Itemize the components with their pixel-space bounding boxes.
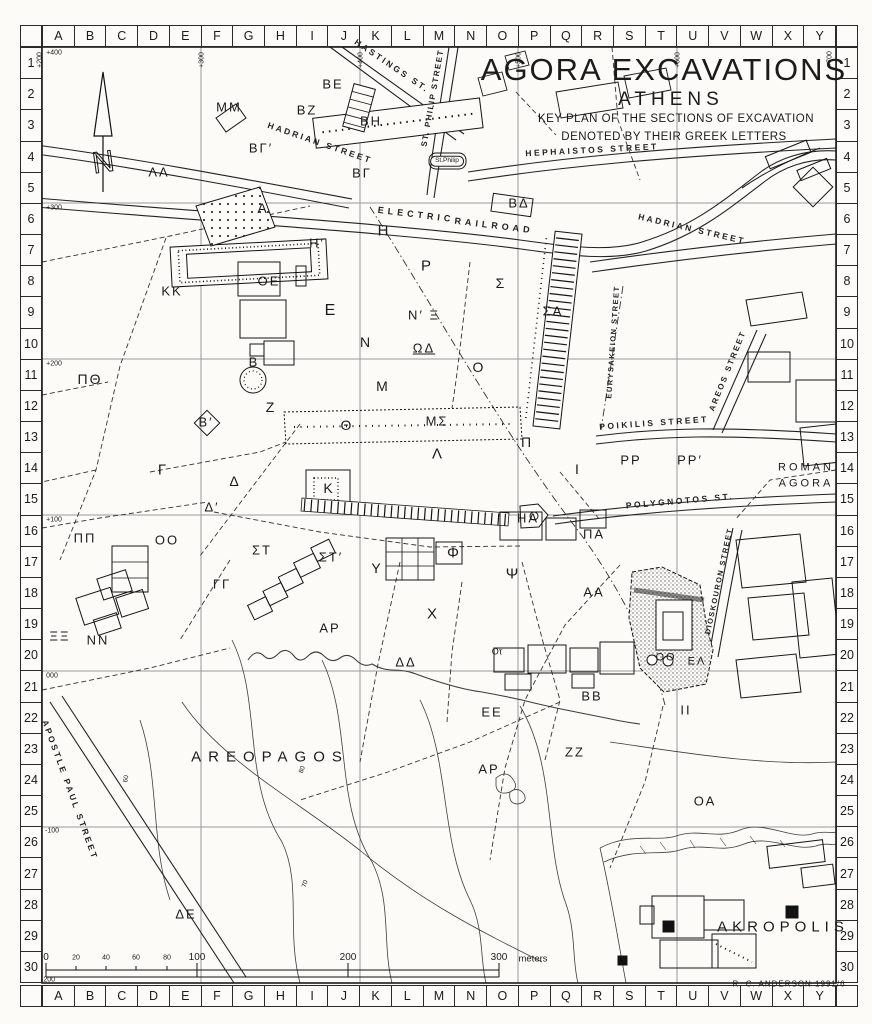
section-label-ΒΓ′: ΒΓ′ <box>249 142 273 155</box>
section-label-ΩΔ: ΩΔ <box>413 342 435 355</box>
section-label-Χ: Χ <box>427 607 439 622</box>
section-label-Β: Β <box>249 356 260 369</box>
section-label-Γ: Γ <box>158 463 168 478</box>
section-label-Β′: Β′ <box>198 416 213 429</box>
section-label-Θ: Θ <box>341 418 354 432</box>
section-label-ΕΕ: ΕΕ <box>481 706 502 719</box>
section-label-Ε: Ε <box>325 303 338 319</box>
region-label-AREOPAGOS: AREOPAGOS <box>191 750 349 765</box>
scale-tick-300: 300 <box>491 953 508 963</box>
street-label-HEPHAISTOS-STREET: HEPHAISTOS STREET <box>525 142 659 157</box>
easting-label-+200: +200 <box>37 52 44 68</box>
street-label-HADRIAN-STREET: HADRIAN STREET <box>267 121 374 165</box>
easting-label-+300: +300 <box>199 52 206 68</box>
section-label-ΒΖ: ΒΖ <box>297 104 318 117</box>
section-label-ΒΓ: ΒΓ <box>352 167 372 180</box>
northing-label-+200: +200 <box>46 361 62 368</box>
section-label-Ψ: Ψ <box>506 567 521 582</box>
section-label-ΡΡ′: ΡΡ′ <box>677 454 703 467</box>
scale-tick-80: 80 <box>163 955 171 962</box>
northing-label--200: -200 <box>41 977 55 984</box>
scale-unit-meters: meters <box>518 954 547 964</box>
street-label-DIOSKOURON-STREET: DIOSKOURON STREET <box>704 527 734 635</box>
section-label-Φ: Φ <box>447 546 461 561</box>
cartographer-credit: R. C. ANDERSON 1991/6 <box>732 980 845 989</box>
region-label-ROMAN: ROMAN <box>778 463 834 474</box>
section-label-ΜΜ: ΜΜ <box>216 101 242 114</box>
section-label-ΛΛ: ΛΛ <box>148 166 169 179</box>
section-label-ΝΝ: ΝΝ <box>87 634 110 647</box>
section-label-Υ: Υ <box>371 561 382 575</box>
street-label-EURYSAKEION-STREET: EURYSAKEION STREET <box>605 285 620 399</box>
section-label-ΜΣ: ΜΣ <box>426 415 449 428</box>
section-label-ΒΗ: ΒΗ <box>360 115 382 128</box>
section-label-Ζ: Ζ <box>266 400 277 414</box>
section-label-ΣΤ′: ΣΤ′ <box>319 551 343 564</box>
street-label-HASTINGS-ST.: HASTINGS ST. <box>353 38 431 95</box>
section-label-ΕΛ: ΕΛ <box>688 657 707 668</box>
easting-label-+500: +500 <box>516 52 523 68</box>
section-label-ΠΠ: ΠΠ <box>74 532 97 545</box>
section-label-ΑΡ: ΑΡ <box>478 763 499 776</box>
section-label-ΟΟ: ΟΟ <box>155 534 179 547</box>
section-label-Η′: Η′ <box>309 237 325 250</box>
scale-tick-200: 200 <box>340 953 357 963</box>
northing-label-+300: +300 <box>46 205 62 212</box>
section-label-Α: Α <box>257 201 268 215</box>
street-label-ELECTRIC: ELECTRIC <box>377 206 455 224</box>
scale-tick-40: 40 <box>102 955 110 962</box>
section-label-Ν: Ν <box>360 335 372 349</box>
section-label-ΚΚ: ΚΚ <box>161 285 182 298</box>
section-label-ΠΘ: ΠΘ <box>78 372 103 386</box>
northing-label--100: -100 <box>45 828 59 835</box>
section-label-ΑΡ: ΑΡ <box>319 622 340 635</box>
section-label-Κ: Κ <box>323 481 334 495</box>
scale-tick-0: 0 <box>43 953 49 963</box>
labels-layer: ΜΜΒΕΒΖΒΗΒΓ′ΒΓΛΛΒΔΑΗ′ΗΡΚΚΟΕΕΣΣΑΝ′ ΞΝΩΔΟΜΒ… <box>0 0 872 1024</box>
street-label-APOSTLE-PAUL-STREET: APOSTLE PAUL STREET <box>41 719 100 861</box>
section-label-Δ: Δ <box>229 474 240 488</box>
region-label-AGORA: AGORA <box>779 479 834 490</box>
section-label-ΒΕ: ΒΕ <box>322 78 343 91</box>
contour-label-80: 80 <box>299 765 308 774</box>
section-label-Ρ: Ρ <box>421 259 433 274</box>
scale-tick-60: 60 <box>132 955 140 962</box>
contour-label-60: 60 <box>123 775 131 783</box>
section-label-ΖΖ: ΖΖ <box>565 746 585 759</box>
section-label-ΓΓ: ΓΓ <box>213 578 231 591</box>
section-label-Δ′: Δ′ <box>204 501 219 514</box>
region-label-AKROPOLIS: AKROPOLIS <box>717 920 849 935</box>
map-sheet: N ABCDEFGHIJKLMNOPQRSTUVWXY ABCDEFGHIJKL… <box>0 0 872 1024</box>
easting-label-+600: +600 <box>675 52 682 68</box>
section-label-ΒΔ: ΒΔ <box>508 197 529 210</box>
scale-tick-20: 20 <box>72 955 80 962</box>
section-label-ΒΒ: ΒΒ <box>581 690 602 703</box>
section-label-Η: Η <box>378 224 391 239</box>
section-label-ΔΔ: ΔΔ <box>395 656 416 669</box>
section-label-Σ: Σ <box>496 276 507 290</box>
section-label-Π: Π <box>521 435 533 449</box>
street-label-HADRIAN-STREET: HADRIAN STREET <box>637 212 746 245</box>
section-label-Λ: Λ <box>432 447 444 462</box>
section-label-ΣΑ: ΣΑ <box>543 305 564 318</box>
section-label-Μ: Μ <box>376 379 390 393</box>
section-label-ΣΤ: ΣΤ <box>252 544 272 557</box>
street-label-ST.-PHILIP-STREET: ST. PHILIP STREET <box>420 49 445 148</box>
section-label-Ν′-Ξ: Ν′ Ξ <box>408 309 440 322</box>
street-label-AREOS-STREET: AREOS STREET <box>708 330 748 413</box>
northing-label-000: 000 <box>46 673 58 680</box>
scale-tick-100: 100 <box>189 953 206 963</box>
street-label-POIKILIS-STREET: POIKILIS STREET <box>599 415 709 431</box>
section-label-ΙΙ: ΙΙ <box>680 704 691 717</box>
section-label-ΗΑ: ΗΑ <box>517 512 539 525</box>
landmark-label-St.Philip: St.Philip <box>430 156 464 167</box>
section-label-ΟΑ: ΟΑ <box>694 795 717 808</box>
section-label-ΟΕ: ΟΕ <box>258 275 281 288</box>
section-label-ΞΞ: ΞΞ <box>50 630 71 643</box>
easting-label-+700: +700 <box>827 51 834 67</box>
northing-label-+400: +400 <box>46 50 62 57</box>
easting-label-+400: +400 <box>358 52 365 68</box>
section-label-ΔΕ: ΔΕ <box>175 908 196 921</box>
section-label-ΟΟ: ΟΟ <box>655 653 676 664</box>
section-label-Ι: Ι <box>575 462 581 476</box>
contour-label-70: 70 <box>302 880 310 889</box>
section-label-ΠΑ: ΠΑ <box>583 528 605 541</box>
street-label-RAILROAD: RAILROAD <box>454 217 534 236</box>
section-label-ΑΑ: ΑΑ <box>583 586 604 599</box>
section-label-Ο: Ο <box>473 360 486 374</box>
section-label-Οτ: Οτ <box>492 648 503 657</box>
street-label-POLYGNOTOS-ST.: POLYGNOTOS ST. <box>625 492 734 510</box>
northing-label-+100: +100 <box>46 517 62 524</box>
section-label-ΡΡ: ΡΡ <box>620 454 641 467</box>
